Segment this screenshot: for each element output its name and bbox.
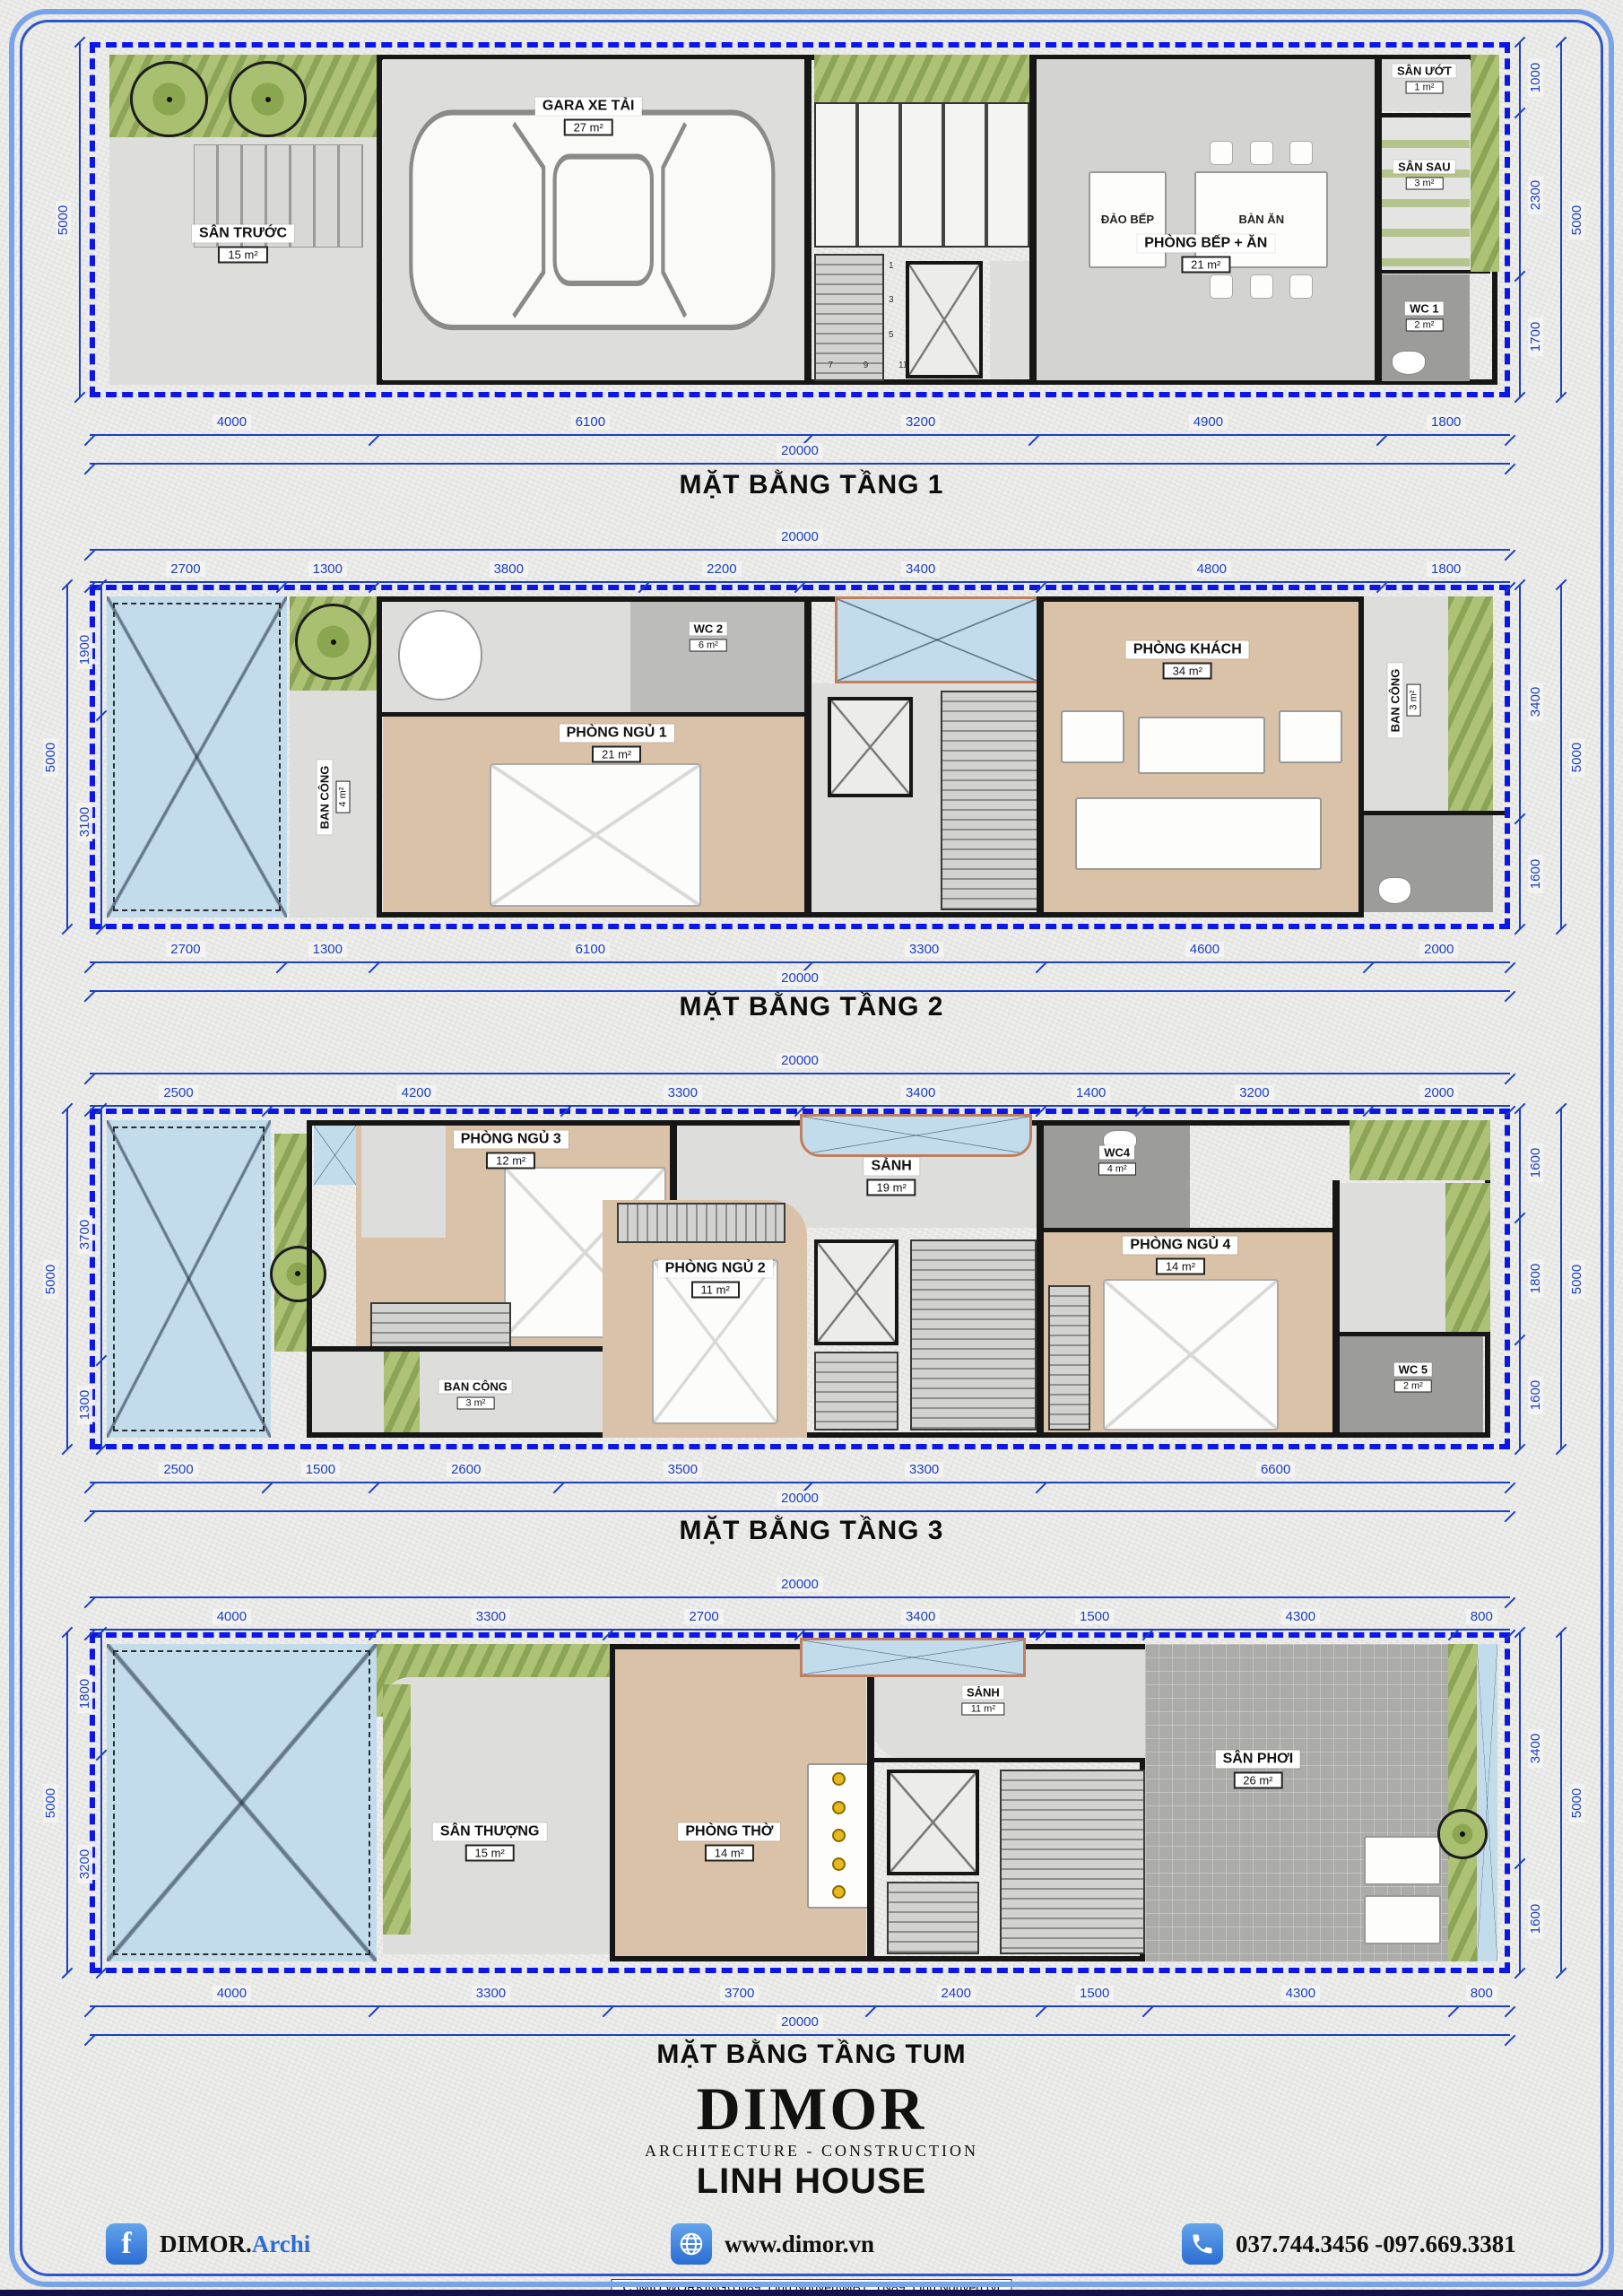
planter-strip [274,1134,311,1352]
stair-number: 5 [889,330,894,340]
tree-icon [229,61,306,136]
dimension-value: 1400 [1072,1085,1110,1100]
wall [1364,811,1505,815]
wall [867,1644,874,1961]
dimension-segment: 1800 [1382,405,1510,436]
dimension-segment: 5000 [1560,1109,1593,1449]
wall [1029,55,1037,386]
planter-edge [1471,55,1498,272]
room-label: PHÒNG NGỦ 1 21 m² [560,725,674,763]
dimension-segment: 4300 [1148,1600,1454,1631]
dimension-value: 5000 [56,200,72,239]
room-label: PHÒNG KHÁCH 34 m² [1126,641,1249,680]
under-stair-room [990,261,1032,378]
room-label: SÂN ƯỚT 1 m² [1393,64,1456,93]
dimension-value: 3300 [905,1462,943,1477]
dimension-segment: 3200 [1141,1076,1367,1107]
dimension-segment: 2400 [871,1977,1041,2007]
floor2-left-total: 5000 [36,585,68,929]
dimension-value: 5000 [1570,200,1585,239]
dimension-value: 5000 [44,1259,59,1298]
dimension-value: 1700 [1529,317,1544,356]
dimension-value: 3300 [472,1609,510,1624]
planter [1350,1120,1490,1179]
dimension-value: 20000 [777,443,823,458]
stair-number: 7 [828,361,833,370]
dimension-value: 5000 [1570,737,1585,776]
dimension-segment: 4000 [90,405,374,436]
stair-number: 11 [898,361,907,370]
dimension-value: 3400 [901,561,940,577]
floor3-right-dims: 160018001600 [1519,1109,1551,1449]
dimension-value: 4300 [1281,1609,1320,1624]
project-name: LINH HOUSE [0,2161,1623,2202]
dimension-segment: 4300 [1148,1977,1454,2007]
dimension-segment: 5000 [36,585,68,929]
dimension-value: 3400 [901,1609,940,1624]
dimension-value: 20000 [777,529,823,544]
garden-strip [814,55,1033,103]
offering-dot [832,1857,846,1871]
room-label: PHÒNG BẾP + ĂN 21 m² [1137,235,1274,274]
dimension-segment: 2000 [1368,933,1510,963]
floor-plan-2: WC 2 6 m² PHÒNG NGỦ 1 21 m² PHÒNG KHÁCH … [90,585,1510,929]
washer-icon [1364,1836,1441,1885]
wall [1335,1332,1490,1336]
stair-number: 1 [889,261,894,271]
dimension-segment: 3300 [566,1076,800,1107]
dimension-segment: 3300 [807,1453,1041,1483]
sofa-icon [1075,797,1322,871]
armchair-icon [1279,710,1342,764]
stairs [1000,1770,1145,1954]
dimension-value: 2400 [937,1986,976,2001]
dimension-value: 3200 [901,414,940,430]
tree-icon [295,604,371,681]
dimension-value: 4600 [1185,942,1224,957]
room-label: WC 5 2 m² [1394,1363,1433,1393]
sheet: 5000 1 3 5 7 9 11 ĐẢO BẾP BÀN ĂN SÂN TRƯ… [0,0,1623,2296]
floor3-right-total: 5000 [1560,1109,1593,1449]
dimension-value: 3300 [472,1986,510,2001]
wall [1375,55,1382,386]
dimension-segment: 3200 [807,405,1034,436]
toilet-icon [1378,877,1412,904]
dimension-value: 1300 [308,942,347,957]
dimension-segment: 1800 [70,1632,102,1755]
floor1-title: MẶT BẰNG TẦNG 1 [0,470,1623,500]
dimension-segment: 1300 [282,552,374,583]
tum-total-dim-top: 20000 [90,1571,1510,1598]
dimension-segment: 3700 [70,1109,102,1361]
wall [1039,1228,1335,1232]
pool-void [107,596,287,917]
elevator-shaft [887,1770,978,1875]
floor2-total-dim-top: 20000 [90,524,1510,551]
bathtub-icon [398,610,482,700]
stairs [887,1882,978,1954]
washer-icon [1364,1895,1441,1944]
floor-plan-tum: SÂN THƯỢNG 15 m² PHÒNG THỜ 14 m² SẢNH 11… [90,1632,1510,1973]
dimension-segment: 6100 [374,933,807,963]
dimension-value: 1300 [78,1386,93,1424]
dimension-value: 1800 [78,1674,93,1713]
wardrobe [361,1126,446,1238]
dimension-value: 20000 [777,1491,823,1506]
dimension-segment: 1400 [1041,1076,1141,1107]
lap-pool-end [800,1114,1032,1157]
dimension-segment: 1500 [267,1453,374,1483]
floor1-bottom-dims: 40006100320049001800 [90,405,1510,436]
dimension-value: 20000 [777,1053,823,1068]
water-feature [314,1126,356,1185]
armchair-icon [1061,710,1124,764]
floor2-total-dim: 20000 [90,965,1510,992]
dimension-segment: 1300 [282,933,374,963]
room-label: PHÒNG THỜ 14 m² [678,1823,780,1862]
dimension-segment: 2700 [90,552,282,583]
dimension-value: 3100 [78,803,93,841]
dimension-segment: 1800 [1519,1218,1551,1341]
floor3-left-dims: 37001300 [70,1109,102,1449]
stair-number: 9 [864,361,869,370]
dimension-value: 1300 [308,561,347,577]
dimension-value: 5000 [1570,1783,1585,1822]
website-url: www.dimor.vn [725,2231,874,2258]
tree-icon [1437,1809,1488,1858]
stairs [910,1239,1037,1431]
wardrobe-strip [617,1203,786,1242]
dimension-segment: 2500 [90,1453,267,1483]
dining-chairs [1202,141,1322,165]
floor3-total-dim-top: 20000 [90,1048,1510,1074]
phone-numbers: 037.744.3456 -097.669.3381 [1236,2231,1516,2258]
dimension-value: 1600 [1529,1900,1544,1938]
room-label: PHÒNG NGỦ 3 12 m² [454,1131,568,1170]
dimension-value: 3200 [1235,1085,1273,1100]
stairs [814,254,885,381]
dining-chairs [1202,274,1322,299]
dimension-segment: 2300 [1519,113,1551,276]
dimension-segment: 800 [1454,1977,1510,2007]
room-label: PHÒNG NGỦ 2 11 m² [658,1260,773,1299]
dimension-value: 2300 [1529,176,1544,214]
elevator-shaft [814,1239,898,1345]
room-label: SẢNH 19 m² [864,1157,919,1196]
floor2-left-dims: 19003100 [70,585,102,929]
floor2-top-dims: 2700130038002200340048001800 [90,552,1510,583]
floor2-title: MẶT BẰNG TẦNG 2 [0,992,1623,1022]
dimension-segment: 3200 [70,1755,102,1973]
wall [871,1758,1146,1762]
floor3-title: MẶT BẰNG TẦNG 3 [0,1516,1623,1546]
dimension-segment: 2700 [608,1600,800,1631]
tum-right-total: 5000 [1560,1632,1593,1973]
dimension-segment: 3400 [800,552,1041,583]
dimension-value: 2500 [159,1085,197,1100]
dimension-segment: 1600 [1519,1340,1551,1449]
dimension-value: 1500 [1075,1986,1114,2001]
tum-top-dims: 400033002700340015004300800 [90,1600,1510,1631]
planter-edge [1445,1183,1490,1332]
dimension-value: 2700 [166,942,204,957]
dimension-value: 1800 [1427,414,1465,430]
dimension-value: 20000 [777,2014,823,2030]
dimension-segment: 4000 [90,1600,374,1631]
dimension-segment: 1600 [1519,1864,1551,1973]
altar-table [807,1763,871,1909]
floor3-total-dim: 20000 [90,1485,1510,1512]
offering-dot [832,1829,846,1842]
dimension-value: 3400 [901,1085,940,1100]
dimension-segment: 4900 [1034,405,1382,436]
room-label: WC 1 2 m² [1405,301,1444,331]
dimension-value: 1600 [1529,1376,1544,1414]
dimension-value: 800 [1466,1986,1497,2001]
room-label: SÂN THƯỢNG 15 m² [433,1823,546,1862]
planter [384,1352,419,1432]
offering-dot [832,1801,846,1814]
floor1-right-dims: 100023001700 [1519,42,1551,397]
coffee-table-icon [1138,717,1264,773]
dimension-value: 2700 [684,1609,723,1624]
dimension-value: 5000 [1570,1259,1585,1298]
room-label: BAN CÔNG 3 m² [439,1379,512,1409]
dimension-segment: 1700 [1519,276,1551,397]
tum-total-dim: 20000 [90,2009,1510,2036]
brand-logo: DIMOR [0,2074,1623,2144]
dimension-segment: 4800 [1041,552,1382,583]
floor2-right-dims: 34001600 [1519,585,1551,929]
dimension-value: 3200 [78,1845,93,1883]
dimension-value: 1000 [1529,58,1544,97]
dimension-value: 2000 [1419,942,1458,957]
dimension-value: 1600 [1529,855,1544,893]
tree-icon [130,61,207,136]
dimension-segment: 4000 [90,1977,374,2007]
dimension-segment: 2500 [90,1076,267,1107]
dimension-segment: 4600 [1041,933,1367,963]
floor-plan-1: 1 3 5 7 9 11 ĐẢO BẾP BÀN ĂN SÂN TRƯỚC 15… [90,42,1510,397]
planter-edge [1448,596,1493,810]
dimension-segment: 2000 [1368,1076,1510,1107]
dimension-segment: 5000 [48,42,81,397]
website-contact: www.dimor.vn [671,2222,874,2266]
phone-contact: 037.744.3456 -097.669.3381 [1182,2222,1516,2266]
offering-dot [832,1772,846,1786]
floor-plan-3: PHÒNG NGỦ 3 12 m² PHÒNG NGỦ 2 11 m² SẢNH… [90,1109,1510,1449]
dimension-value: 1800 [1427,561,1465,577]
dimension-segment: 5000 [36,1109,68,1449]
water-strip [1477,1644,1498,1961]
dimension-value: 3700 [78,1215,93,1254]
dimension-value: 6100 [571,414,610,430]
dimension-segment: 3300 [374,1977,608,2007]
wall [377,712,806,717]
dimension-value: 2000 [1419,1085,1458,1100]
dimension-value: 4300 [1281,1986,1320,2001]
tum-bottom-dims: 400033003700240015004300800 [90,1977,1510,2007]
dimension-value: 3300 [905,942,943,957]
dimension-segment: 20000 [90,1571,1510,1598]
stairs [370,1302,511,1349]
tum-left-total: 5000 [36,1632,68,1973]
room-label: SÂN SAU 3 m² [1393,161,1455,190]
dimension-segment: 3400 [1519,585,1551,819]
floor2-right-total: 5000 [1560,585,1593,929]
room-label: SÂN TRƯỚC 15 m² [192,224,294,263]
dimension-value: 5000 [44,737,59,776]
dimension-segment: 2200 [644,552,800,583]
bed-icon [1103,1279,1280,1431]
dimension-value: 20000 [777,1577,823,1592]
dimension-value: 3500 [664,1462,702,1477]
floor1-right-total: 5000 [1560,42,1593,397]
elevator-shaft [906,261,983,378]
dimension-value: 3800 [490,561,528,577]
dimension-segment: 800 [1454,1600,1510,1631]
dimension-segment: 3300 [807,933,1041,963]
dimension-value: 4000 [213,1986,251,2001]
pool-skylight [800,1638,1026,1677]
phone-icon [1182,2223,1223,2265]
room-label: PHÒNG NGỦ 4 14 m² [1123,1237,1237,1275]
terrace-floor [383,1677,610,1954]
floor2-bottom-dims: 270013006100330046002000 [90,933,1510,963]
dimension-value: 2600 [447,1462,485,1477]
dimension-segment: 2600 [374,1453,559,1483]
dimension-segment: 20000 [90,2009,1510,2036]
dimension-segment: 6600 [1041,1453,1510,1483]
toilet-icon [1392,351,1426,375]
planter-edge [1448,1644,1476,1961]
dimension-segment: 3800 [374,552,644,583]
pool-skylight [835,596,1039,683]
room-label: GARA XE TẢI 27 m² [535,97,642,135]
dimension-value: 4000 [213,414,251,430]
dimension-segment: 20000 [90,965,1510,992]
dimension-segment: 3300 [374,1600,608,1631]
dimension-segment: 1000 [1519,42,1551,113]
dimension-segment: 3400 [800,1600,1041,1631]
dimension-value: 1500 [301,1462,340,1477]
floor1-left-dim: 5000 [48,42,81,397]
dimension-segment: 20000 [90,1048,1510,1074]
dimension-segment: 4200 [267,1076,566,1107]
stairs [814,1352,898,1431]
dimension-value: 2700 [166,561,204,577]
back-yard-floor [1382,118,1469,270]
dimension-value: 4200 [397,1085,436,1100]
dimension-value: 3300 [664,1085,702,1100]
dimension-value: 6600 [1256,1462,1295,1477]
dimension-segment: 1600 [1519,1109,1551,1218]
dimension-segment: 20000 [90,524,1510,551]
dimension-value: 6100 [571,942,610,957]
dimension-value: 5000 [44,1783,59,1822]
dimension-value: 4800 [1193,561,1231,577]
brand-tagline: ARCHITECTURE - CONSTRUCTION [0,2142,1623,2161]
room-label: BAN CÔNG 4 m² [317,760,350,834]
stair-number: 3 [889,295,894,305]
wall [1037,596,1044,917]
pool-void [107,1644,378,1961]
floor3-top-dims: 2500420033003400140032002000 [90,1076,1510,1107]
stairs [941,691,1039,911]
facebook-icon: f [106,2223,147,2265]
room-label: BAN CÔNG 3 m² [1388,663,1421,737]
dimension-segment: 3700 [608,1977,871,2007]
facebook-handle: DIMOR.Archi [160,2231,310,2258]
dimension-value: 1500 [1075,1609,1114,1624]
dimension-segment: 1500 [1041,1977,1148,2007]
dimension-value: 1600 [1529,1144,1544,1182]
dimension-segment: 2700 [90,933,282,963]
dimension-segment: 3400 [800,1076,1041,1107]
globe-icon [671,2223,712,2265]
tum-left-dims: 18003200 [70,1632,102,1973]
floor3-left-total: 5000 [36,1109,68,1449]
dimension-segment: 1300 [70,1361,102,1449]
wall [804,596,811,917]
dimension-segment: 3100 [70,716,102,929]
dimension-segment: 1600 [1519,819,1551,929]
utility-floor [1340,1183,1445,1332]
elevator-shaft [828,697,912,797]
pool-void [107,1120,272,1437]
dimension-segment: 1500 [1041,1600,1148,1631]
dimension-value: 1800 [1529,1259,1544,1298]
dimension-segment: 5000 [1560,42,1593,397]
floor1-total-dim: 20000 [90,438,1510,465]
bottom-edge-bar [0,2290,1623,2296]
room-label: SÂN PHƠI 26 m² [1216,1751,1301,1789]
dimension-value: 3400 [1529,1729,1544,1768]
dimension-segment: 20000 [90,1485,1510,1512]
wall [1332,1180,1340,1438]
dimension-value: 800 [1466,1609,1497,1624]
room-label: SẢNH 11 m² [962,1685,1004,1715]
room-label: WC 2 6 m² [690,622,728,652]
ladder-strip [1048,1285,1090,1431]
dimension-value: 4900 [1189,414,1228,430]
facebook-contact: f DIMOR.Archi [106,2222,310,2266]
dimension-segment: 1900 [70,585,102,716]
bed-icon [490,763,701,907]
dimension-value: 20000 [777,970,823,986]
tum-title: MẶT BẰNG TẦNG TUM [0,2039,1623,2070]
dimension-segment: 3500 [559,1453,807,1483]
dimension-segment: 5000 [1560,1632,1593,1973]
skylight-louvers [814,102,1033,247]
wall [804,55,811,386]
wall [1037,1120,1044,1437]
dimension-segment: 6100 [374,405,807,436]
dimension-value: 4000 [213,1609,251,1624]
dimension-segment: 20000 [90,438,1510,465]
dimension-value: 3400 [1529,683,1544,721]
wc2-floor [630,602,805,712]
dimension-segment: 1800 [1382,552,1510,583]
dimension-segment: 5000 [1560,585,1593,929]
floor3-bottom-dims: 250015002600350033006600 [90,1453,1510,1483]
room-label: WC4 4 m² [1098,1145,1136,1175]
dimension-segment: 3400 [1519,1632,1551,1864]
tum-right-dims: 34001600 [1519,1632,1551,1973]
dimension-value: 1900 [78,631,93,669]
dimension-value: 2500 [159,1462,197,1477]
offering-dot [832,1885,846,1899]
